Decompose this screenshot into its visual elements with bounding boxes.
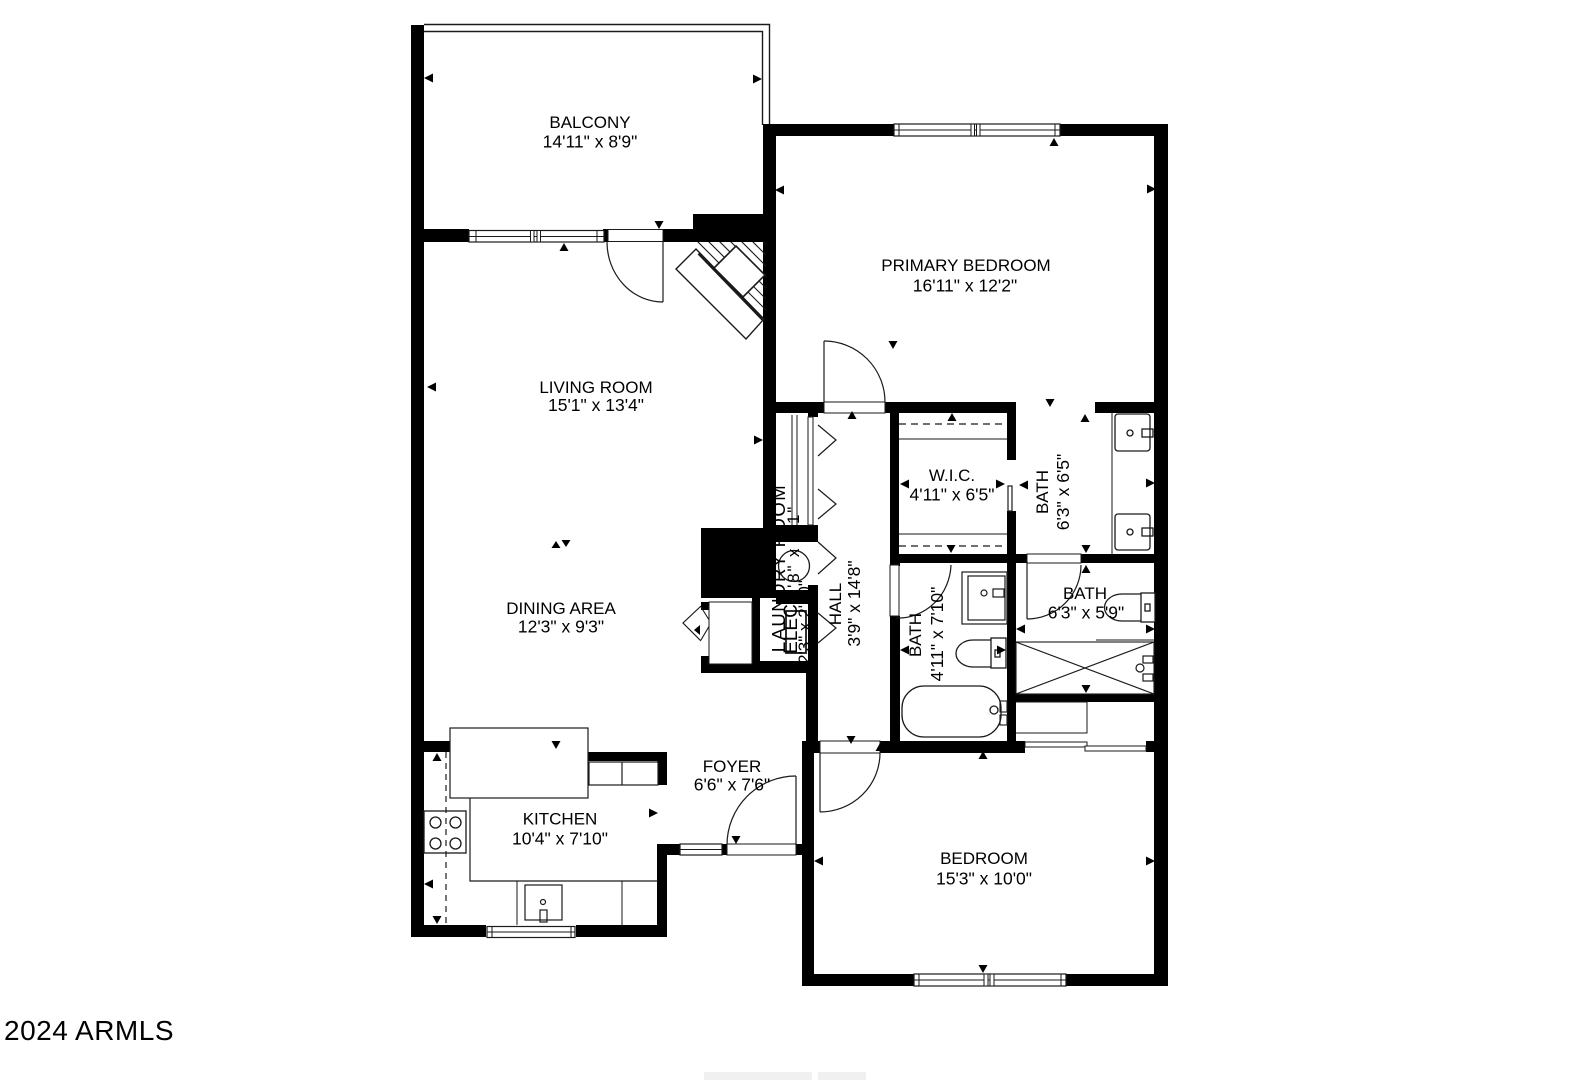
svg-text:FOYER: FOYER [703,757,762,776]
svg-text:2024 ARMLS: 2024 ARMLS [4,1015,174,1046]
svg-text:BATH: BATH [1033,470,1052,514]
svg-text:15'3" x 10'0": 15'3" x 10'0" [936,869,1032,889]
svg-text:2'3" x 2'10": 2'3" x 2'10" [795,580,814,664]
svg-text:16'11" x 12'2": 16'11" x 12'2" [913,276,1017,296]
svg-text:4'11" x 7'10": 4'11" x 7'10" [927,587,947,682]
svg-text:3'9" x 14'8": 3'9" x 14'8" [844,560,864,646]
svg-text:6'3" x 5'9": 6'3" x 5'9" [1048,603,1125,623]
svg-text:14'11" x 8'9": 14'11" x 8'9" [543,132,638,152]
svg-text:W.I.C.: W.I.C. [929,466,975,485]
svg-text:DINING AREA: DINING AREA [506,599,616,618]
svg-text:BATH: BATH [1063,584,1107,603]
svg-text:BALCONY: BALCONY [549,113,630,132]
svg-text:12'3" x 9'3": 12'3" x 9'3" [518,617,604,637]
svg-text:KITCHEN: KITCHEN [523,810,598,829]
svg-text:10'4" x 7'10": 10'4" x 7'10" [512,829,608,849]
svg-text:6'3" x 6'5": 6'3" x 6'5" [1053,454,1073,531]
svg-text:BEDROOM: BEDROOM [940,849,1028,868]
svg-text:PRIMARY BEDROOM: PRIMARY BEDROOM [881,256,1050,275]
svg-text:15'1" x 13'4": 15'1" x 13'4" [548,395,644,415]
svg-text:4'11" x 6'5": 4'11" x 6'5" [910,485,995,505]
svg-text:6'6" x 7'6": 6'6" x 7'6" [694,775,771,795]
svg-text:HALL: HALL [826,583,845,626]
